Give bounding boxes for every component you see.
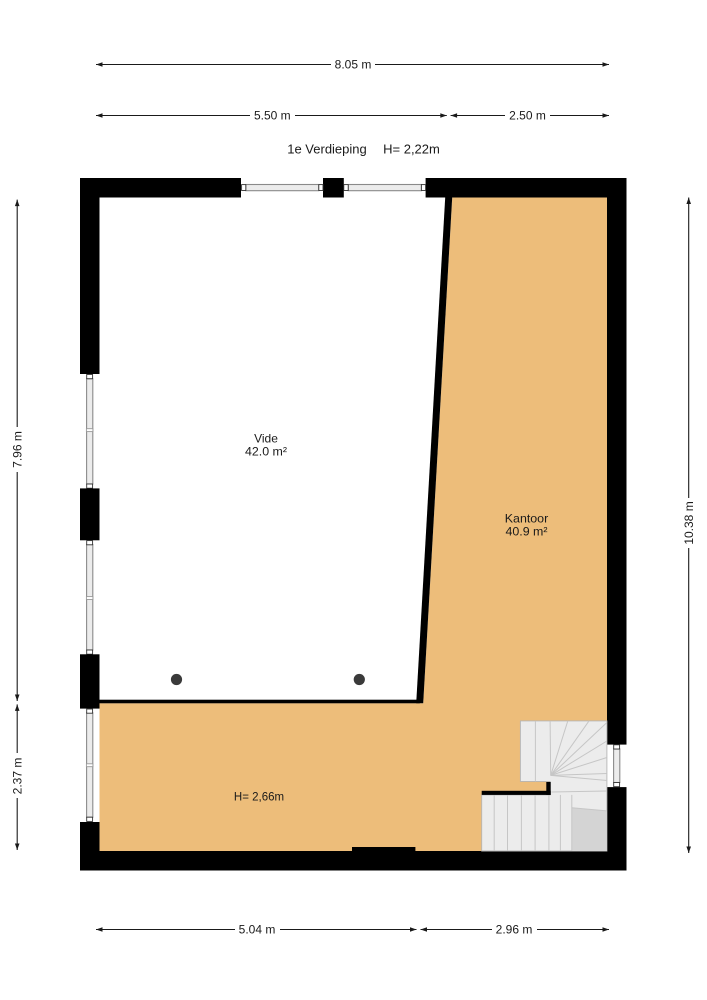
svg-text:40.9 m²: 40.9 m² xyxy=(505,525,547,539)
svg-text:2.50 m: 2.50 m xyxy=(509,109,546,123)
svg-text:10.38 m: 10.38 m xyxy=(682,501,696,544)
svg-text:2.96 m: 2.96 m xyxy=(496,923,533,937)
svg-text:7.96 m: 7.96 m xyxy=(10,431,24,468)
svg-text:1e Verdieping: 1e Verdieping xyxy=(287,142,367,157)
svg-text:8.05 m: 8.05 m xyxy=(335,58,372,72)
svg-text:Vide: Vide xyxy=(254,432,278,446)
svg-text:H= 2,66m: H= 2,66m xyxy=(234,792,284,804)
svg-text:Kantoor: Kantoor xyxy=(505,512,548,526)
svg-text:42.0 m²: 42.0 m² xyxy=(245,445,287,459)
svg-text:2.37 m: 2.37 m xyxy=(10,758,24,795)
svg-text:H= 2,22m: H= 2,22m xyxy=(383,142,440,157)
svg-text:5.50 m: 5.50 m xyxy=(254,109,291,123)
svg-text:5.04 m: 5.04 m xyxy=(239,923,276,937)
